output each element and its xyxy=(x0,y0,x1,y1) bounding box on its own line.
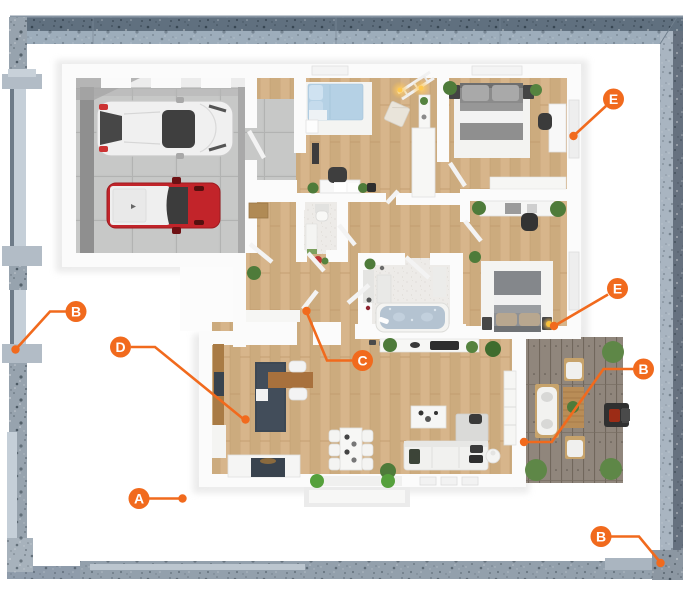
svg-text:B: B xyxy=(71,304,81,320)
svg-text:D: D xyxy=(115,339,125,355)
svg-text:B: B xyxy=(638,361,648,377)
svg-text:C: C xyxy=(357,353,367,369)
svg-text:E: E xyxy=(613,281,622,297)
svg-text:E: E xyxy=(609,91,618,107)
svg-text:A: A xyxy=(134,491,144,507)
svg-text:B: B xyxy=(596,529,606,545)
